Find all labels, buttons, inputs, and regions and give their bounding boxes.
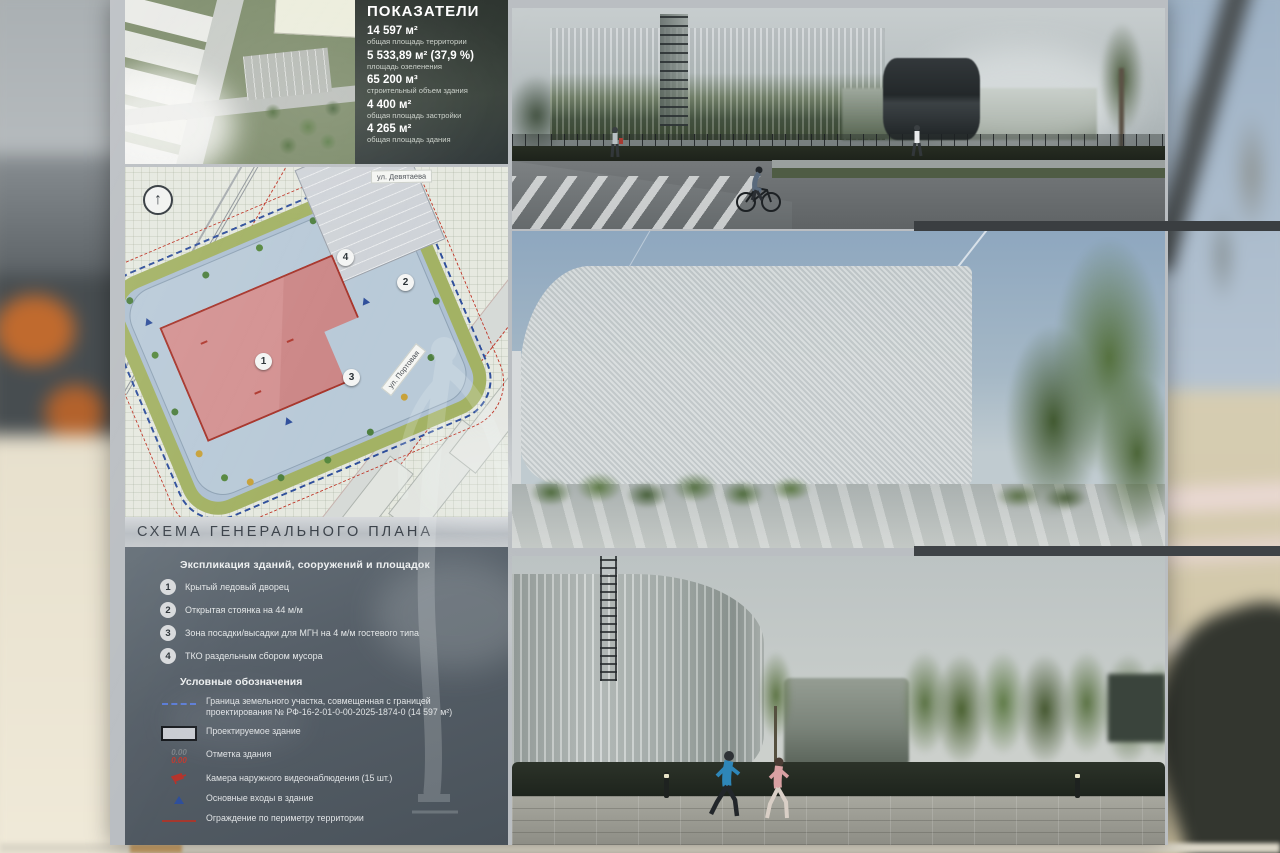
street-view-render [512, 8, 1165, 229]
stat-item: 14 597 м² общая площадь территории [367, 25, 499, 47]
item-number-badge: 2 [160, 602, 176, 618]
facade-texture [520, 266, 972, 484]
stats-title: ПОКАЗАТЕЛИ [367, 3, 499, 20]
legend-panel-content: Экспликация зданий, сооружений и площадо… [125, 547, 508, 845]
legend-label: Камера наружного видеонаблюдения (15 шт.… [206, 773, 392, 784]
cyclist-figure [734, 160, 782, 214]
render-dark-pavilion [883, 58, 980, 140]
site-photo: ПОКАЗАТЕЛИ 14 597 м² общая площадь терри… [0, 0, 1280, 853]
north-arrow: ↑ [143, 185, 173, 215]
render-stair-tower [660, 14, 688, 126]
render-facade-building [520, 266, 972, 484]
background-right [1150, 0, 1280, 853]
pedestrian-figure [910, 124, 924, 158]
explication-item: 1 Крытый ледовый дворец [160, 579, 498, 595]
legend-label: Отметка здания [206, 749, 271, 760]
plan-marker-3: 3 [343, 369, 360, 386]
render-grass-strip [772, 168, 1165, 178]
item-label: Крытый ледовый дворец [185, 582, 289, 592]
legend-title: Условные обозначения [180, 676, 498, 688]
render-ice-palace [550, 28, 885, 140]
stat-item: 4 400 м² общая площадь застройки [367, 99, 499, 121]
stat-label: площадь озеленения [367, 63, 499, 71]
render-sidewalk [512, 796, 1165, 845]
render-far-building [1108, 674, 1165, 742]
planned-building-swatch [160, 726, 198, 741]
legend-label: Проектируемое здание [206, 726, 301, 737]
explication-item: 3 Зона посадки/высадки для МГН на 4 м/м … [160, 625, 498, 641]
render-tree [979, 231, 1165, 548]
legend-item: Основные входы в здание [160, 793, 498, 805]
elevation-value-red: 0.00 [171, 756, 187, 765]
plan-title: СХЕМА ГЕНЕРАЛЬНОГО ПЛАНА [137, 524, 433, 540]
aerial-main-building [274, 0, 355, 38]
legend-label: Основные входы в здание [206, 793, 313, 804]
legend-label: Граница земельного участка, совмещенная … [206, 696, 476, 718]
stat-value: 5 533,89 м² (37,9 %) [367, 50, 499, 63]
render-divider [914, 221, 1280, 231]
render-column [512, 0, 1165, 845]
item-number-badge: 4 [160, 648, 176, 664]
background-orange-machine [45, 385, 105, 440]
legend-label: Ограждение по периметру территории [206, 813, 364, 824]
presentation-board: ПОКАЗАТЕЛИ 14 597 м² общая площадь терри… [110, 0, 1168, 845]
item-label: Зона посадки/высадки для МГН на 4 м/м го… [185, 628, 419, 638]
plan-marker-1: 1 [255, 353, 272, 370]
plan-title-band: СХЕМА ГЕНЕРАЛЬНОГО ПЛАНА [125, 517, 508, 547]
stat-label: общая площадь застройки [367, 112, 499, 120]
evening-walk-render [512, 556, 1165, 845]
legend-item: Проектируемое здание [160, 726, 498, 741]
legend-item: Камера наружного видеонаблюдения (15 шт.… [160, 773, 498, 785]
aerial-view-render [125, 0, 355, 164]
render-stair-tower [600, 556, 617, 681]
legend-item: Ограждение по периметру территории [160, 813, 498, 825]
render-hedge [512, 762, 1165, 798]
stat-label: строительный объем здания [367, 87, 499, 95]
plan-annotation-mark [254, 390, 261, 395]
pedestrian-figure [608, 126, 624, 160]
cctv-camera-icon [160, 773, 198, 785]
jogger-figures [707, 744, 817, 834]
stat-item: 4 265 м² общая площадь здания [367, 123, 499, 145]
easel-leg [130, 844, 182, 853]
street-label-devyataeva: ул. Девятаева [371, 169, 432, 183]
plan-annotation-mark [200, 340, 207, 345]
aerial-trees [253, 90, 353, 164]
entrance-triangle-icon [160, 793, 198, 805]
item-label: ТКО раздельным сбором мусора [185, 651, 323, 661]
stat-label: общая площадь территории [367, 38, 499, 46]
item-number-badge: 3 [160, 625, 176, 641]
stat-item: 65 200 м³ строительный объем здания [367, 74, 499, 96]
stat-label: общая площадь здания [367, 136, 499, 144]
plan-marker-4: 4 [337, 249, 354, 266]
render-divider [914, 546, 1280, 556]
bollard-light [664, 772, 669, 798]
item-label: Открытая стоянка на 44 м/м [185, 605, 303, 615]
perimeter-fence-line [160, 813, 198, 825]
render-crosswalk [512, 176, 767, 229]
site-boundary-dashed-line [160, 696, 198, 708]
explication-item: 4 ТКО раздельным сбором мусора [160, 648, 498, 664]
stat-item: 5 533,89 м² (37,9 %) площадь озеленения [367, 50, 499, 72]
stats-panel: ПОКАЗАТЕЛИ 14 597 м² общая площадь терри… [355, 0, 508, 164]
explication-title: Экспликация зданий, сооружений и площадо… [180, 559, 498, 571]
render-side-wall [512, 351, 521, 491]
bollard-light [1075, 772, 1080, 798]
explication-item: 2 Открытая стоянка на 44 м/м [160, 602, 498, 618]
legend-panel: Экспликация зданий, сооружений и площадо… [125, 547, 508, 845]
board-left-column: ПОКАЗАТЕЛИ 14 597 м² общая площадь терри… [125, 0, 508, 845]
item-number-badge: 1 [160, 579, 176, 595]
render-shrubs [527, 465, 827, 515]
legend-item: 0.000.00 Отметка здания [160, 749, 498, 765]
elevation-mark: 0.000.00 [160, 749, 198, 765]
plan-marker-2: 2 [397, 274, 414, 291]
stat-value: 4 400 м² [367, 99, 499, 112]
plan-annotation-mark [287, 338, 294, 343]
legend-item: Граница земельного участка, совмещенная … [160, 696, 498, 718]
master-plan-drawing: ↑ ул. Девятаева ул. Портовая 1 2 3 4 [125, 167, 508, 517]
facade-render [512, 231, 1165, 548]
